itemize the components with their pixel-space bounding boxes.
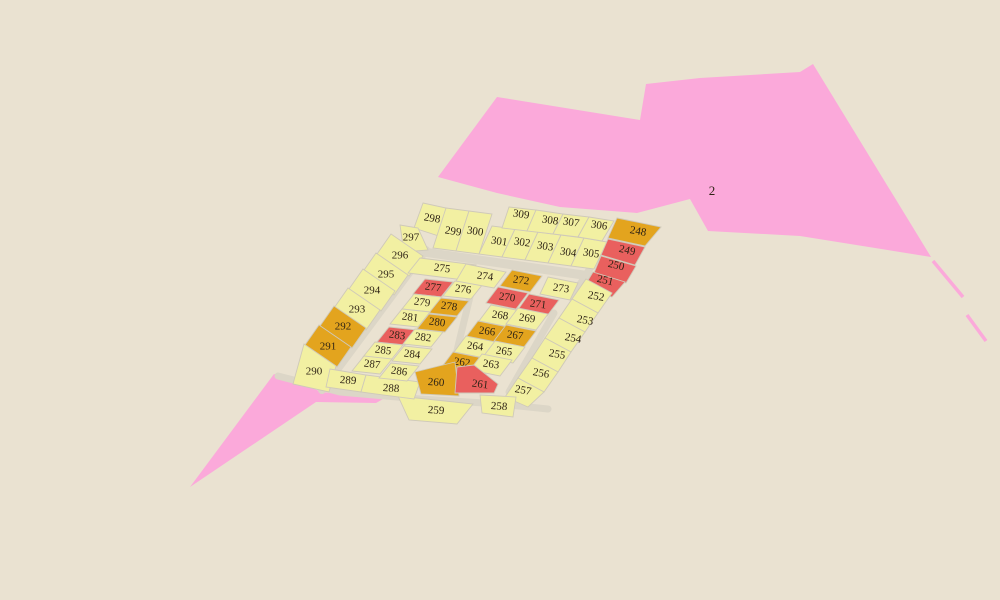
parcel-map: 2298299300301302303304305309308307306248…	[0, 0, 1000, 600]
parcel-258-polygon[interactable]	[480, 395, 516, 417]
map-viewport: 2298299300301302303304305309308307306248…	[0, 0, 1000, 600]
parcel-258: 258	[480, 395, 516, 417]
area-2-label: 2	[709, 183, 716, 198]
